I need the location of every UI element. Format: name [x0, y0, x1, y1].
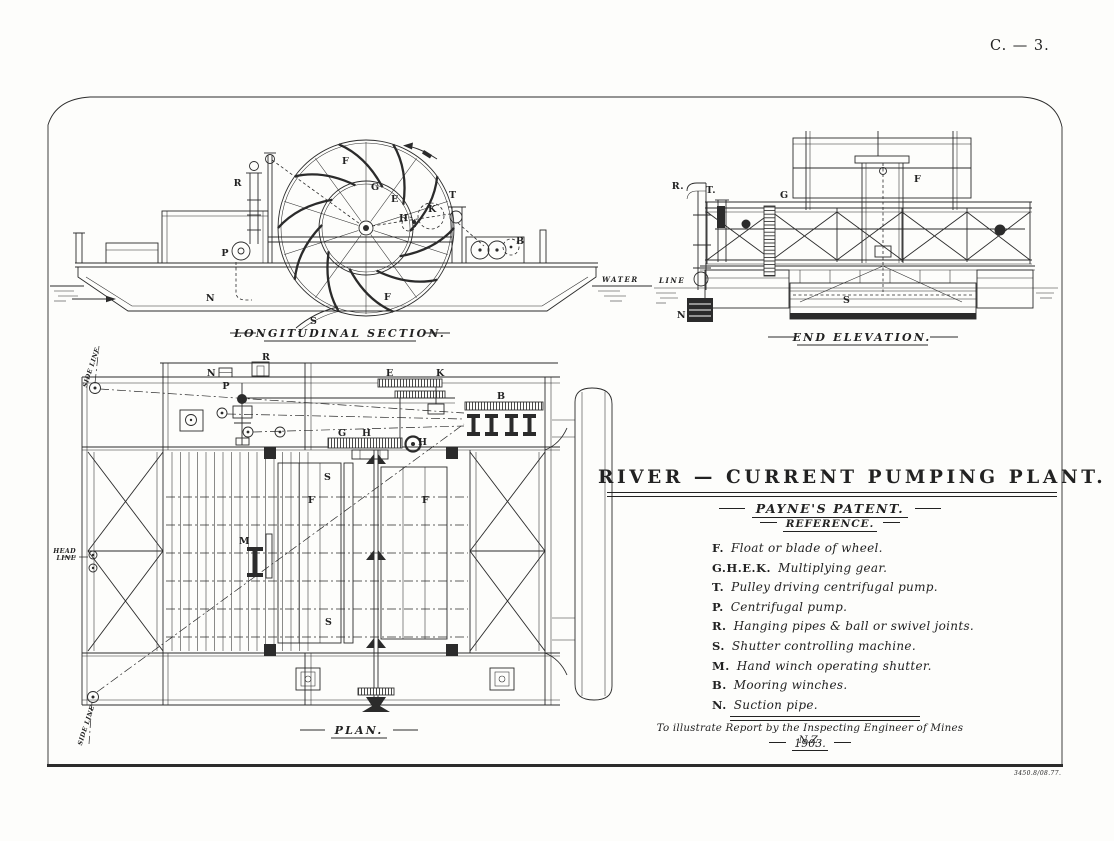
reference-item: S.Shutter controlling machine. [712, 635, 974, 655]
pontoons-and-shutter [705, 266, 1033, 319]
label-s: S [310, 316, 317, 327]
reference-desc: Centrifugal pump. [731, 600, 847, 614]
year-row: 1903. [645, 737, 975, 750]
reference-key: S. [712, 639, 725, 653]
label-b: B [497, 391, 506, 402]
hand-winch [247, 534, 272, 578]
plan-caption: PLAN. [300, 724, 418, 738]
plan-pump-assembly [180, 362, 269, 445]
reference-desc: Float or blade of wheel. [731, 541, 883, 555]
reference-item: G.H.E.K.Multiplying gear. [712, 557, 974, 577]
label-p: P [222, 381, 230, 392]
reference-item: N.Suction pipe. [712, 694, 974, 714]
reference-key: P. [712, 600, 724, 614]
dash-rule [719, 508, 745, 509]
label-e: E [386, 368, 394, 379]
reference-desc: Suction pipe. [734, 698, 818, 712]
label-h: H [399, 213, 408, 224]
reference-key: R. [712, 619, 727, 633]
reference-heading: REFERENCE. [783, 518, 878, 532]
label-g: G [780, 190, 789, 201]
reference-key: G.H.E.K. [712, 561, 771, 575]
year: 1903. [792, 737, 828, 751]
subtitle-row: PAYNE'S PATENT. [598, 501, 1062, 516]
reference-key: M. [712, 659, 730, 673]
label-h2: H [418, 437, 427, 448]
dash-rule [883, 522, 900, 523]
reference-item: T.Pulley driving centrifugal pump. [712, 576, 974, 596]
drawing-sheet: C. — 3. WATER [0, 0, 1114, 841]
label-s-bottom: S [325, 617, 332, 628]
dash-rule [915, 508, 941, 509]
label-t: T. [706, 185, 716, 196]
label-f-bottom: F [384, 292, 391, 303]
svg-text:END ELEVATION.: END ELEVATION. [792, 331, 932, 344]
label-s: S [843, 295, 850, 306]
print-code: 3450.8/08.77. [1014, 770, 1061, 777]
end-elevation-caption: END ELEVATION. [768, 331, 958, 345]
reference-key: T. [712, 580, 724, 594]
water-line-label-2: LINE [658, 276, 685, 285]
head-line-label-1: HEAD [52, 548, 76, 555]
reference-list: F.Float or blade of wheel. G.H.E.K.Multi… [712, 537, 974, 713]
label-f: F [914, 174, 921, 185]
reference-desc: Hand winch operating shutter. [737, 659, 932, 673]
label-r: R [262, 352, 270, 363]
label-k: K [428, 204, 437, 215]
wheel-well [264, 447, 458, 700]
reference-item: P.Centrifugal pump. [712, 596, 974, 616]
dash-rule [769, 742, 786, 743]
reference-item: R.Hanging pipes & ball or swivel joints. [712, 615, 974, 635]
svg-text:PLAN.: PLAN. [334, 724, 384, 737]
label-n: N [206, 293, 215, 304]
reference-desc: Multiplying gear. [778, 561, 887, 575]
reference-item: M.Hand winch operating shutter. [712, 655, 974, 675]
end-elevation-drawing: LINE [654, 131, 1058, 345]
dash-rule [834, 742, 851, 743]
reference-item: B.Mooring winches. [712, 674, 974, 694]
head-line-label-2: LINE [55, 555, 76, 562]
label-e: E [391, 194, 399, 205]
float-panel [793, 131, 971, 210]
label-r: R [234, 178, 242, 189]
title-double-rule [607, 492, 1057, 497]
label-b: B [516, 236, 525, 247]
side-pontoon [552, 388, 612, 700]
longitudinal-section-drawing: WATER [50, 140, 652, 341]
barge-hull [75, 263, 598, 311]
label-p: P [221, 248, 229, 259]
side-line-label-bottom: SIDE LINE [77, 705, 96, 747]
reference-desc: Hanging pipes & ball or swivel joints. [734, 619, 974, 633]
reference-desc: Pulley driving centrifugal pump. [731, 580, 938, 594]
longitudinal-caption: LONGITUDINAL SECTION. [230, 327, 450, 341]
label-h1: H [362, 428, 371, 439]
label-f-left: F [308, 495, 315, 506]
shutter-machine-tower [855, 156, 909, 292]
side-line-label-top: SIDE LINE [82, 347, 101, 389]
label-g: G [338, 428, 347, 439]
label-f-right: F [422, 495, 429, 506]
label-t: T [449, 190, 457, 201]
label-f-top: F [342, 156, 349, 167]
reference-heading-row: REFERENCE. [598, 518, 1062, 530]
water-line-label: WATER [602, 275, 639, 284]
drawing-title: RIVER — CURRENT PUMPING PLANT. [598, 467, 1062, 488]
reference-desc: Shutter controlling machine. [732, 639, 916, 653]
engraving-artwork: WATER [0, 0, 1114, 841]
svg-text:LONGITUDINAL SECTION.: LONGITUDINAL SECTION. [233, 327, 446, 340]
plan-drawing: R N P E K B G H H S F F M S HEAD LINE SI… [52, 346, 612, 746]
reference-key: F. [712, 541, 724, 555]
planked-deck [166, 452, 468, 651]
left-truss-bay [88, 450, 163, 653]
reference-desc: Mooring winches. [734, 678, 848, 692]
patent-subtitle: PAYNE'S PATENT. [752, 501, 908, 518]
pump-and-pipes [232, 153, 276, 300]
label-n: N [207, 368, 216, 379]
label-m: M [239, 536, 250, 547]
deck-structures [73, 207, 546, 263]
reference-item: F.Float or blade of wheel. [712, 537, 974, 557]
label-k: K [436, 368, 445, 379]
mooring-lines [62, 346, 464, 744]
label-g: G [371, 182, 380, 193]
label-n: N [677, 310, 686, 321]
attribution-double-rule [730, 716, 920, 721]
reference-key: N. [712, 698, 727, 712]
dash-rule [760, 522, 777, 523]
label-r: R. [672, 181, 684, 192]
right-truss-bay [470, 450, 545, 653]
truss-framing [700, 202, 1035, 270]
reference-key: B. [712, 678, 727, 692]
plan-mooring-winches [465, 402, 543, 436]
label-s-top: S [324, 472, 331, 483]
